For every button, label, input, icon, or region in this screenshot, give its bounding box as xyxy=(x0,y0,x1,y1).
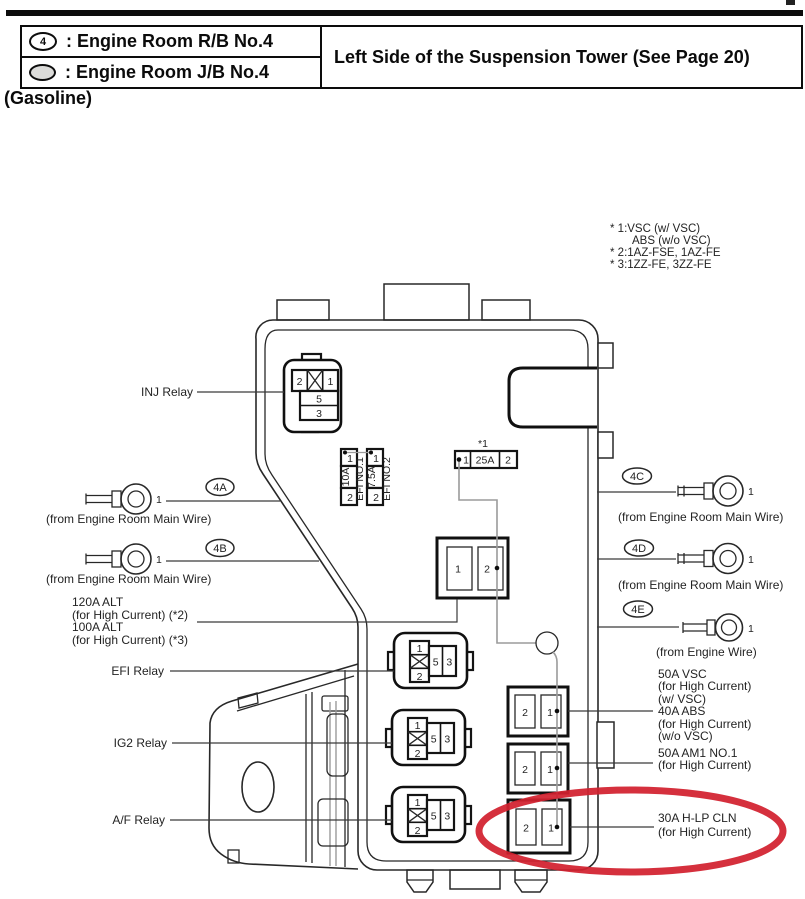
connector-4d: 1 4D (from Engine Room Main Wire) xyxy=(618,540,783,592)
svg-text:2: 2 xyxy=(415,748,421,760)
svg-text:10A: 10A xyxy=(340,468,352,487)
svg-text:3: 3 xyxy=(444,734,450,746)
alt-label-block: 120A ALT (for High Current) (*2) 100A AL… xyxy=(72,595,188,647)
bottom-foot-right xyxy=(515,870,547,892)
svg-text:1: 1 xyxy=(156,494,162,506)
engine-notes: * 1:VSC (w/ VSC) ABS (w/o VSC) * 2:1AZ-F… xyxy=(610,223,721,271)
svg-text:1: 1 xyxy=(415,797,421,809)
svg-text:(w/o VSC): (w/o VSC) xyxy=(658,729,713,743)
connector-4e: 1 4E (from Engine Wire) xyxy=(624,601,757,659)
svg-text:3: 3 xyxy=(444,811,450,823)
ring-terminal xyxy=(121,484,151,514)
svg-text:3: 3 xyxy=(316,408,322,420)
svg-text:120A ALT: 120A ALT xyxy=(72,595,124,609)
fusebox-diagram: * 1:VSC (w/ VSC) ABS (w/o VSC) * 2:1AZ-F… xyxy=(0,0,805,899)
inj-relay-label: INJ Relay xyxy=(141,385,193,399)
svg-text:1: 1 xyxy=(455,564,461,576)
svg-text:2: 2 xyxy=(415,825,421,837)
top-tab-right xyxy=(482,300,530,320)
svg-text:1: 1 xyxy=(547,764,553,776)
svg-text:EFI NO.1: EFI NO.1 xyxy=(354,457,366,501)
inj-relay-symbol: 2 1 5 3 xyxy=(284,354,341,432)
svg-text:2: 2 xyxy=(522,764,528,776)
svg-text:40A ABS: 40A ABS xyxy=(658,704,705,718)
svg-text:1: 1 xyxy=(417,643,423,655)
relay-labels: INJ Relay EFI Relay IG2 Relay A/F Relay xyxy=(111,385,193,827)
svg-text:(for High Current): (for High Current) xyxy=(658,679,751,693)
svg-text:(from Engine Room Main Wire): (from Engine Room Main Wire) xyxy=(618,578,783,592)
svg-text:2: 2 xyxy=(523,823,529,835)
note-line-1: * 1:VSC (w/ VSC) xyxy=(610,223,700,235)
ring-terminal xyxy=(713,476,743,506)
svg-text:1: 1 xyxy=(748,486,754,498)
hc-fuse-block-3: 2 1 xyxy=(508,800,570,853)
svg-text:(for High Current): (for High Current) xyxy=(658,825,751,839)
main-fuse-25a: *1 1 25A 2 xyxy=(455,438,517,468)
mounting-bracket xyxy=(209,664,358,869)
alt-leader xyxy=(197,599,457,622)
svg-text:1: 1 xyxy=(463,455,469,467)
svg-text:(for High Current) (*3): (for High Current) (*3) xyxy=(72,633,188,647)
note-line-2: ABS (w/o VSC) xyxy=(632,235,711,247)
svg-text:7.5A: 7.5A xyxy=(366,466,378,488)
svg-text:4C: 4C xyxy=(630,471,644,483)
bracket-hole xyxy=(242,762,274,812)
connector-4b: 1 4B (from Engine Room Main Wire) xyxy=(46,540,234,587)
svg-text:1: 1 xyxy=(548,823,554,835)
note-line-3: * 2:1AZ-FSE, 1AZ-FE xyxy=(610,247,721,259)
hlp-label-block: 30A H-LP CLN (for High Current) xyxy=(658,811,751,839)
af-relay-label: A/F Relay xyxy=(112,813,165,827)
vsc-label-block: 50A VSC (for High Current) (w/ VSC) 40A … xyxy=(658,667,751,772)
bottom-tab-center xyxy=(450,870,500,889)
svg-text:2: 2 xyxy=(347,492,353,504)
svg-text:1: 1 xyxy=(347,453,353,465)
side-tab-1 xyxy=(598,343,613,368)
svg-text:2: 2 xyxy=(522,707,528,719)
svg-text:1: 1 xyxy=(748,623,754,635)
svg-text:(for High Current): (for High Current) xyxy=(658,758,751,772)
svg-text:(from Engine Room Main Wire): (from Engine Room Main Wire) xyxy=(618,510,783,524)
af-relay-symbol: 1 2 5 3 xyxy=(386,787,471,842)
svg-text:3: 3 xyxy=(446,657,452,669)
connector-4c: 1 4C (from Engine Room Main Wire) xyxy=(618,468,783,524)
svg-text:(from Engine Wire): (from Engine Wire) xyxy=(656,645,757,659)
svg-text:*1: *1 xyxy=(478,438,488,450)
ring-terminal xyxy=(713,544,743,574)
side-tab-2 xyxy=(598,432,613,458)
svg-text:2: 2 xyxy=(505,455,511,467)
round-hole xyxy=(536,632,558,654)
connector-4a: 1 4A (from Engine Room Main Wire) xyxy=(46,479,234,527)
svg-text:1: 1 xyxy=(327,376,333,388)
note-line-4: * 3:1ZZ-FE, 3ZZ-FE xyxy=(610,259,712,271)
svg-text:5: 5 xyxy=(433,657,439,669)
ig2-relay-symbol: 1 2 5 3 xyxy=(386,710,471,765)
svg-text:1: 1 xyxy=(415,720,421,732)
svg-text:2: 2 xyxy=(297,376,303,388)
svg-text:1: 1 xyxy=(748,554,754,566)
svg-text:1: 1 xyxy=(373,453,379,465)
svg-text:(from Engine Room Main Wire): (from Engine Room Main Wire) xyxy=(46,572,211,586)
svg-text:25A: 25A xyxy=(476,455,495,467)
top-tab-center xyxy=(384,284,469,320)
ig2-relay-label: IG2 Relay xyxy=(114,736,167,750)
fuse-strip-efi-no2: 1 7.5A 2 EFI NO.2 xyxy=(366,449,393,505)
bottom-foot-left xyxy=(407,870,433,892)
svg-text:4E: 4E xyxy=(631,604,644,616)
fuse-strip-efi-no1: 1 10A 2 EFI NO.1 xyxy=(340,449,366,505)
svg-text:2: 2 xyxy=(484,564,490,576)
svg-text:4A: 4A xyxy=(213,482,227,494)
svg-text:4D: 4D xyxy=(632,543,646,555)
svg-text:2: 2 xyxy=(373,492,379,504)
side-handle xyxy=(509,368,597,427)
svg-text:1: 1 xyxy=(156,554,162,566)
svg-text:5: 5 xyxy=(431,811,437,823)
svg-text:(from Engine Room Main Wire): (from Engine Room Main Wire) xyxy=(46,512,211,526)
svg-text:1: 1 xyxy=(547,707,553,719)
efi-relay-label: EFI Relay xyxy=(111,664,164,678)
side-tab-3 xyxy=(597,722,614,768)
svg-text:100A ALT: 100A ALT xyxy=(72,620,124,634)
top-tab-left xyxy=(277,300,329,320)
svg-text:2: 2 xyxy=(417,671,423,683)
manual-page: 4 : Engine Room R/B No.4 : Engine Room J… xyxy=(0,0,805,899)
ring-terminal xyxy=(121,544,151,574)
efi-relay-symbol: 1 2 5 3 xyxy=(388,633,473,688)
svg-text:4B: 4B xyxy=(213,543,226,555)
ring-terminal xyxy=(716,614,743,641)
svg-text:5: 5 xyxy=(431,734,437,746)
svg-text:5: 5 xyxy=(316,394,322,406)
svg-text:EFI NO.2: EFI NO.2 xyxy=(381,457,393,501)
svg-text:30A H-LP CLN: 30A H-LP CLN xyxy=(658,811,737,825)
